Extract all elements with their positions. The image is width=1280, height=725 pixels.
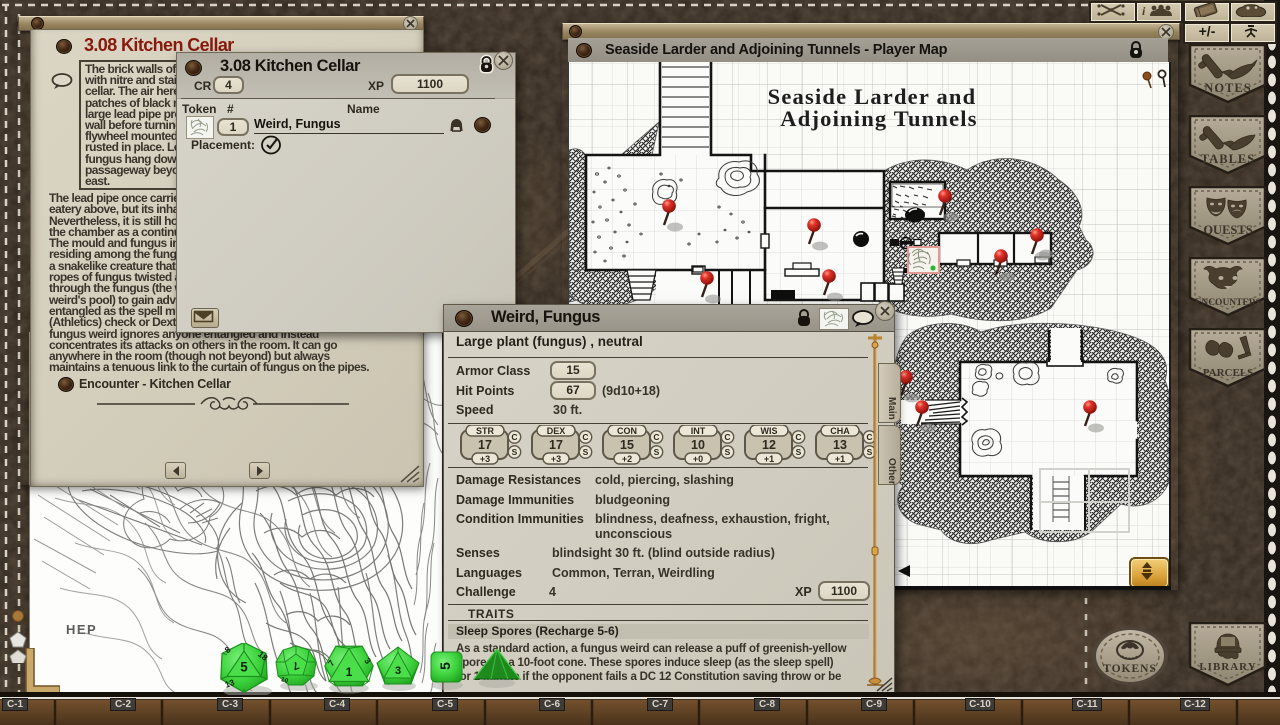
svg-text:INT: INT: [691, 426, 706, 436]
svg-text:Adjoining Tunnels: Adjoining Tunnels: [780, 106, 977, 131]
svg-text:TABLES: TABLES: [1201, 152, 1255, 166]
svg-text:DEX: DEX: [547, 426, 566, 436]
svg-text:NOTES: NOTES: [1204, 81, 1251, 95]
svg-text:LIBRARY: LIBRARY: [1199, 661, 1256, 673]
svg-text:WIS: WIS: [761, 426, 778, 436]
svg-text:S: S: [512, 447, 518, 457]
svg-text:ENCOUNTERS: ENCOUNTERS: [1195, 298, 1261, 308]
svg-text:+2: +2: [622, 454, 632, 464]
svg-text:+1: +1: [764, 454, 774, 464]
svg-text:+3: +3: [551, 454, 561, 464]
svg-text:QUESTS: QUESTS: [1203, 223, 1252, 237]
svg-text:3: 3: [395, 665, 401, 677]
svg-text:TOKENS: TOKENS: [1103, 663, 1157, 675]
svg-text:C: C: [511, 432, 517, 442]
svg-text:PARCELS: PARCELS: [1203, 367, 1254, 379]
svg-text:5: 5: [240, 660, 248, 675]
svg-text:15: 15: [620, 438, 634, 452]
svg-text:+0: +0: [693, 454, 703, 464]
svg-text:i: i: [1142, 4, 1146, 17]
svg-text:CHA: CHA: [830, 426, 850, 436]
svg-text:17: 17: [549, 438, 563, 452]
svg-text:12: 12: [762, 438, 776, 452]
svg-text:+1: +1: [835, 454, 845, 464]
svg-text:CON: CON: [617, 426, 637, 436]
svg-text:HEP: HEP: [66, 622, 97, 637]
svg-text:STR: STR: [476, 426, 495, 436]
svg-text:10: 10: [691, 438, 705, 452]
svg-text:13: 13: [833, 438, 847, 452]
svg-text:1: 1: [346, 665, 353, 679]
svg-text:+3: +3: [480, 454, 490, 464]
svg-text:5: 5: [437, 662, 453, 670]
svg-text:17: 17: [478, 438, 492, 452]
